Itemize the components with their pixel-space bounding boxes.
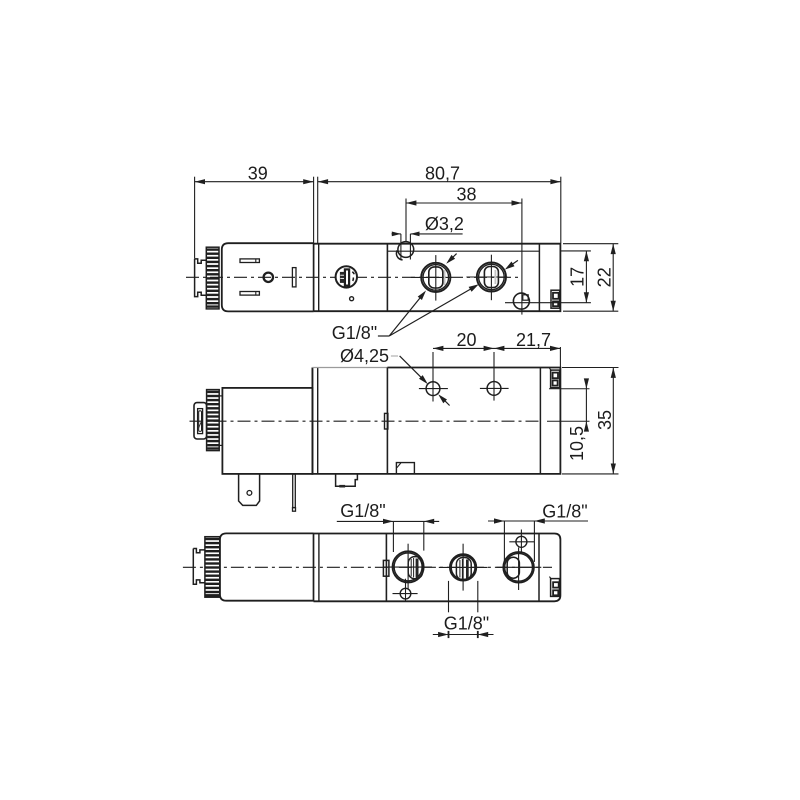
svg-text:G1/8": G1/8" (444, 613, 489, 633)
svg-text:80,7: 80,7 (425, 163, 460, 183)
svg-text:Ø4,25: Ø4,25 (340, 346, 389, 366)
svg-text:35: 35 (595, 410, 615, 430)
svg-text:22: 22 (595, 267, 615, 287)
svg-text:21,7: 21,7 (516, 330, 551, 350)
svg-text:10,5: 10,5 (567, 426, 587, 461)
svg-text:G1/8": G1/8" (340, 501, 385, 521)
svg-text:20: 20 (456, 330, 476, 350)
svg-text:39: 39 (248, 163, 268, 183)
svg-text:Ø3,2: Ø3,2 (425, 214, 464, 234)
svg-text:38: 38 (456, 185, 476, 205)
svg-text:G1/8": G1/8" (332, 323, 377, 343)
svg-text:17: 17 (568, 267, 588, 287)
svg-text:G1/8": G1/8" (542, 502, 587, 522)
